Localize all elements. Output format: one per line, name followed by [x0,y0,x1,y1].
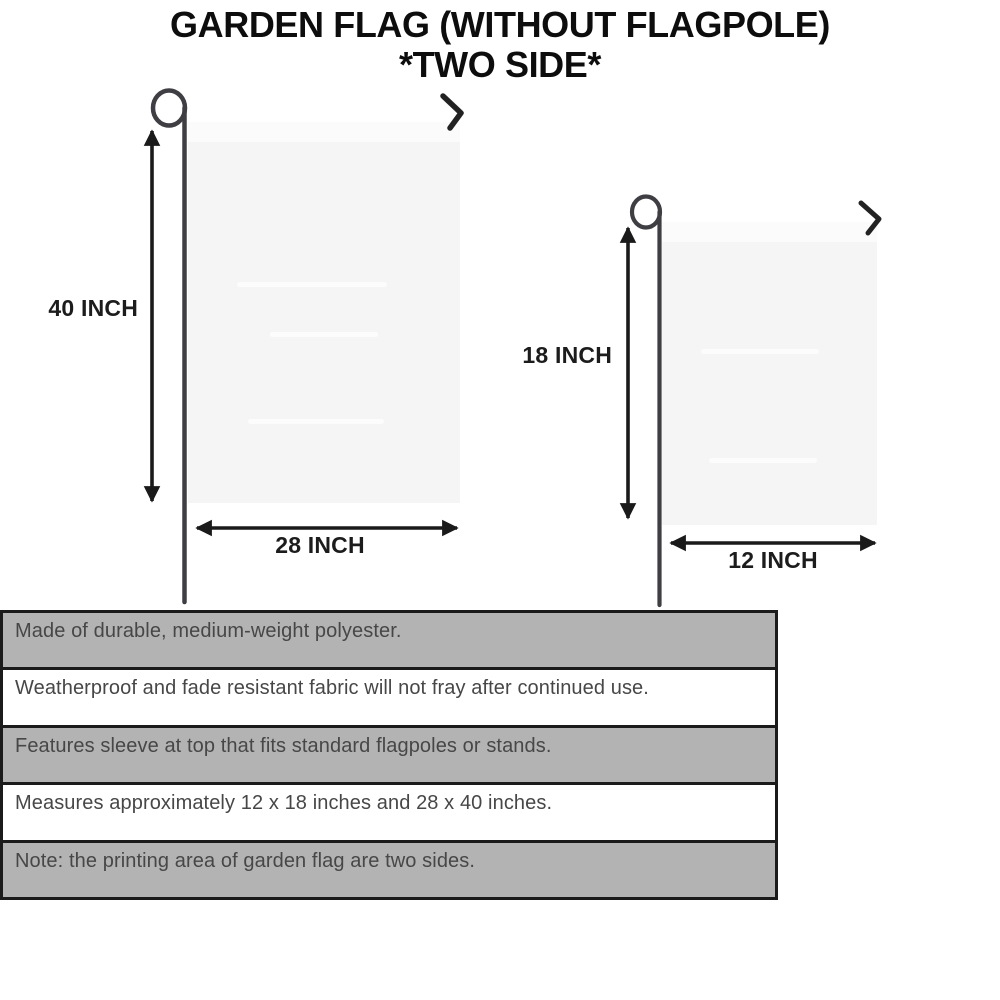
spec-table: Made of durable, medium-weight polyester… [0,610,778,900]
title-line2: *TWO SIDE* [0,45,1000,85]
spec-text: Features sleeve at top that fits standar… [15,735,552,757]
spec-text: Weatherproof and fade resistant fabric w… [15,677,649,699]
page-title: GARDEN FLAG (WITHOUT FLAGPOLE) *TWO SIDE… [0,5,1000,86]
small-flag-width-label: 12 INCH [703,547,843,574]
garden-flag-infographic: GARDEN FLAG (WITHOUT FLAGPOLE) *TWO SIDE… [0,0,1000,1000]
spec-text: Measures approximately 12 x 18 inches an… [15,792,552,814]
small-flag [662,222,877,525]
spec-row-material: Made of durable, medium-weight polyester… [3,613,775,670]
title-line1: GARDEN FLAG (WITHOUT FLAGPOLE) [0,5,1000,45]
large-flag [188,122,460,503]
large-flagpole-icon [153,91,185,603]
large-flag-width-label: 28 INCH [250,532,390,559]
large-flag-sleeve [188,122,460,142]
spec-row-measurements: Measures approximately 12 x 18 inches an… [3,785,775,842]
flag-wrinkle [237,282,387,287]
flag-wrinkle [701,349,819,354]
small-flagpole-icon [632,197,660,606]
spec-text: Note: the printing area of garden flag a… [15,850,475,872]
spec-text: Made of durable, medium-weight polyester… [15,620,402,642]
spec-row-sleeve: Features sleeve at top that fits standar… [3,728,775,785]
spec-row-weatherproof: Weatherproof and fade resistant fabric w… [3,670,775,727]
spec-row-note: Note: the printing area of garden flag a… [3,843,775,897]
small-flag-height-label: 18 INCH [492,342,612,369]
small-flag-sleeve [662,222,877,242]
flag-wrinkle [709,458,817,463]
flag-wrinkle [270,332,379,337]
large-flag-height-label: 40 INCH [18,295,138,322]
flag-wrinkle [248,419,384,424]
